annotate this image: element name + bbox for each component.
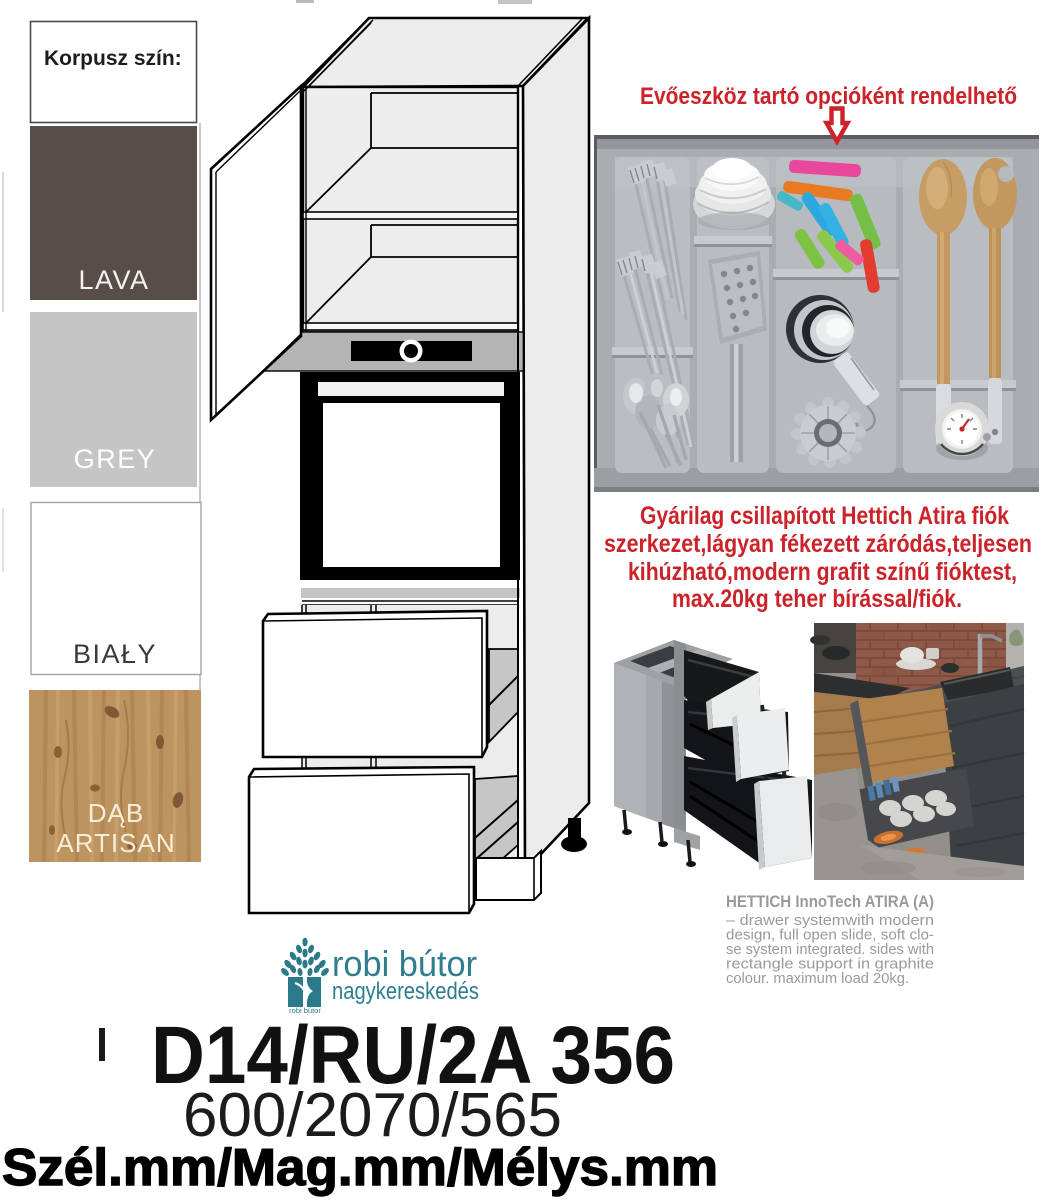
svg-text:max.20kg teher bírással/fiók.: max.20kg teher bírással/fiók. — [672, 585, 962, 613]
svg-text:GREY: GREY — [74, 444, 157, 474]
svg-text:HETTICH InnoTech ATIRA (A): HETTICH InnoTech ATIRA (A) — [726, 893, 934, 911]
svg-text:Gyárilag csillapított Hettich: Gyárilag csillapított Hettich Atira fiók — [640, 502, 1009, 530]
svg-text:DĄB: DĄB — [88, 798, 144, 828]
svg-text:colour. maximum load 20kg.: colour. maximum load 20kg. — [726, 971, 909, 987]
svg-text:Korpusz szín:: Korpusz szín: — [44, 47, 182, 70]
svg-text:Evőeszköz tartó opcióként rend: Evőeszköz tartó opcióként rendelhető — [640, 83, 1017, 110]
svg-text:BIAŁY: BIAŁY — [73, 639, 157, 669]
svg-text:Szél.mm/Mag.mm/Mélys.mm: Szél.mm/Mag.mm/Mélys.mm — [2, 1139, 718, 1197]
svg-text:nagykereskedés: nagykereskedés — [332, 978, 479, 1005]
svg-text:LAVA: LAVA — [78, 265, 149, 295]
svg-text:kihúzható,modern grafit színű: kihúzható,modern grafit színű fióktest, — [628, 558, 1017, 586]
svg-text:ARTISAN: ARTISAN — [56, 828, 175, 858]
svg-text:szerkezet,lágyan fékezett záró: szerkezet,lágyan fékezett záródás,teljes… — [604, 530, 1032, 558]
